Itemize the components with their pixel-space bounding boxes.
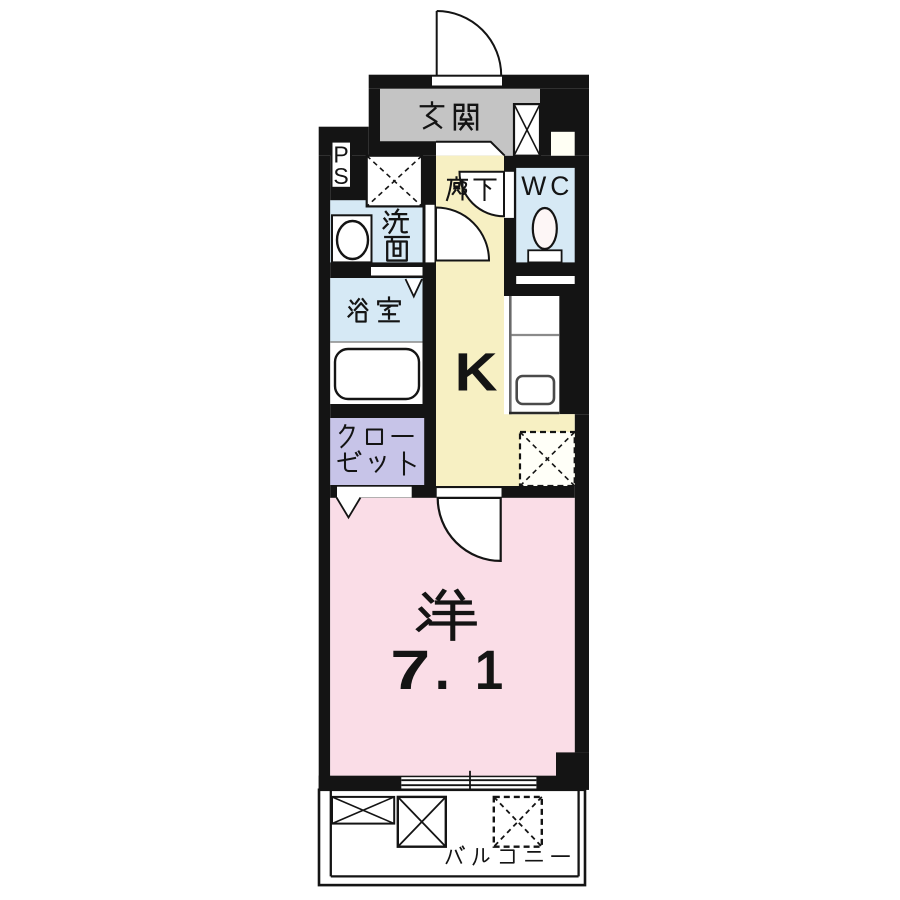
svg-text:S: S [333, 163, 348, 189]
svg-text:.: . [435, 638, 451, 701]
svg-text:1: 1 [475, 640, 503, 702]
svg-text:7: 7 [390, 639, 430, 702]
svg-text:K: K [455, 343, 498, 403]
svg-text:WC: WC [521, 171, 573, 201]
